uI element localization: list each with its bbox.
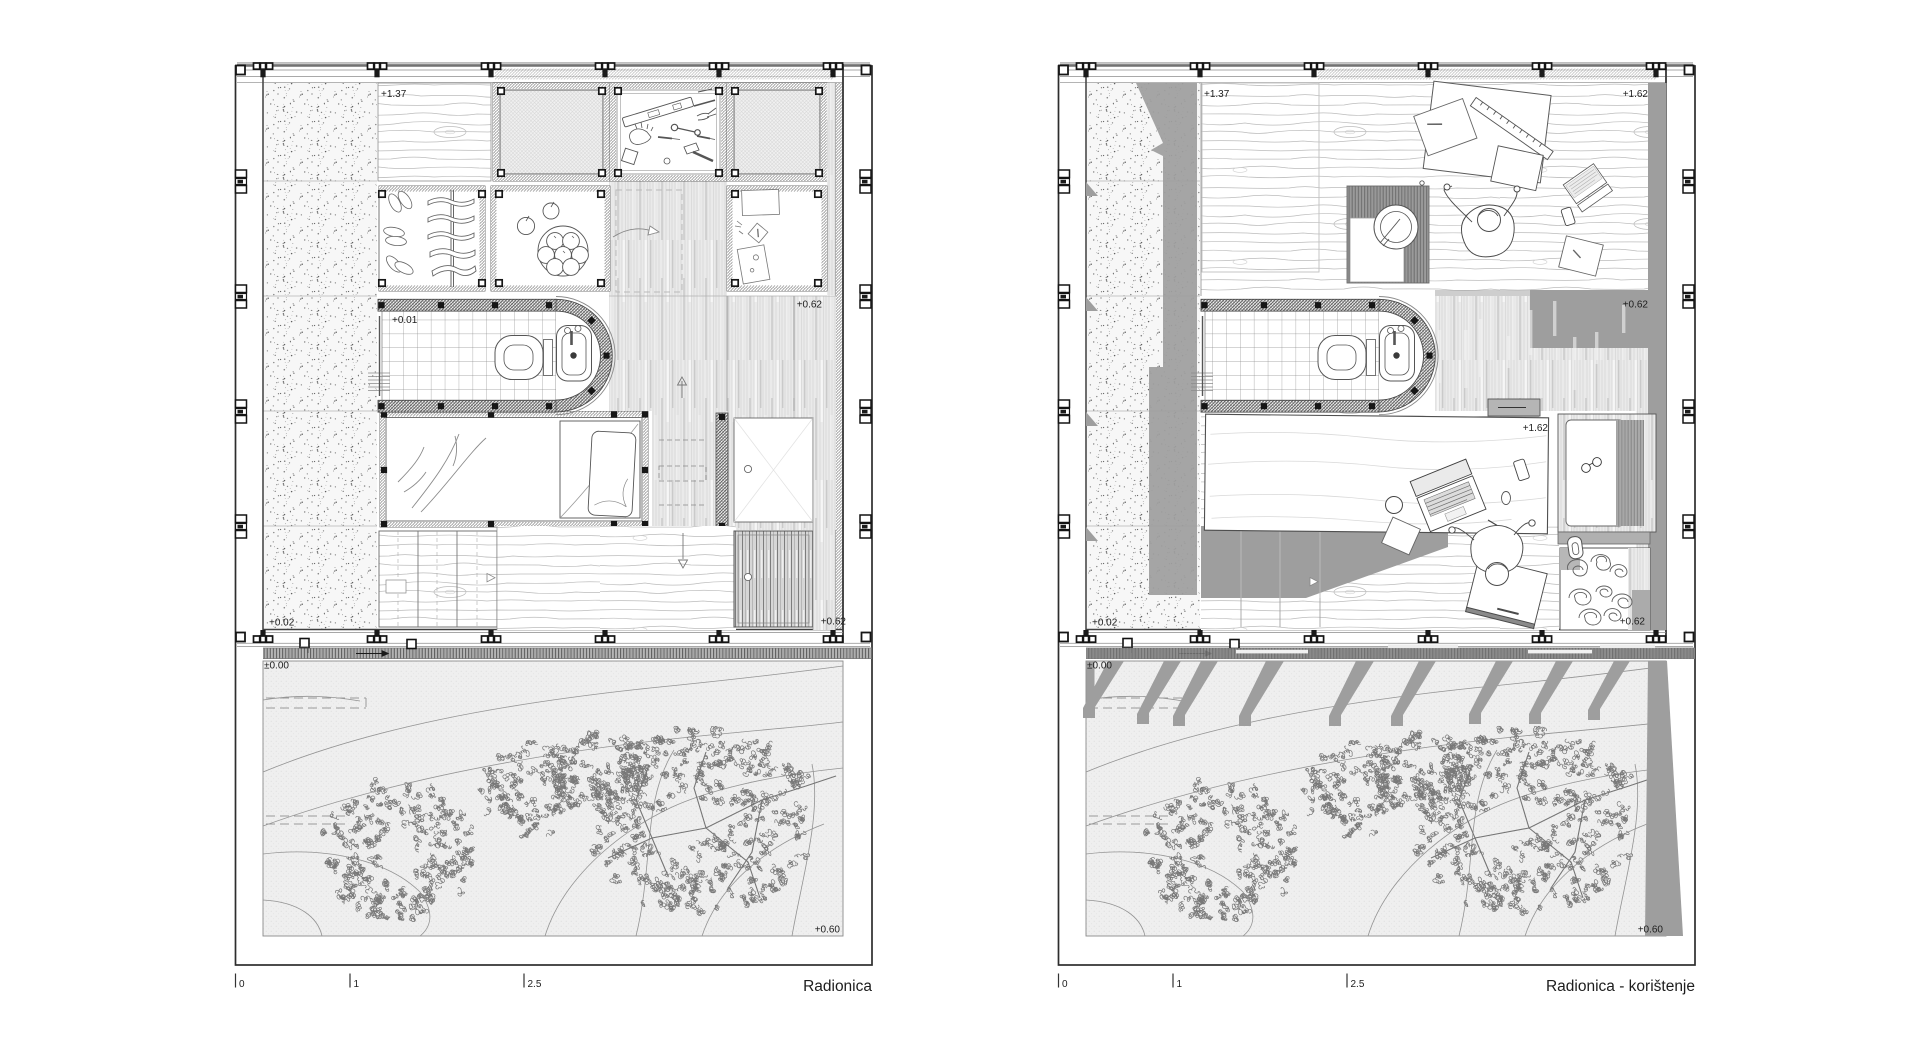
svg-text:1: 1 xyxy=(354,979,360,990)
svg-text:2.5: 2.5 xyxy=(1351,979,1365,990)
svg-text:+0.62: +0.62 xyxy=(1620,617,1646,628)
svg-text:2.5: 2.5 xyxy=(528,979,542,990)
svg-text:+1.37: +1.37 xyxy=(1204,89,1230,100)
svg-text:+0.62: +0.62 xyxy=(821,617,847,628)
svg-text:Radionica - korištenje: Radionica - korištenje xyxy=(1546,978,1695,995)
svg-text:0: 0 xyxy=(239,979,245,990)
svg-text:+0.62: +0.62 xyxy=(797,300,823,311)
svg-text:0: 0 xyxy=(1062,979,1068,990)
svg-text:+1.62: +1.62 xyxy=(1623,89,1649,100)
svg-text:+0.01: +0.01 xyxy=(392,315,418,326)
svg-text:+0.02: +0.02 xyxy=(269,618,295,629)
svg-text:+1.62: +1.62 xyxy=(1523,423,1549,434)
svg-text:1: 1 xyxy=(1177,979,1183,990)
svg-text:Radionica: Radionica xyxy=(803,978,872,995)
svg-text:+0.60: +0.60 xyxy=(1638,925,1664,936)
svg-text:+0.62: +0.62 xyxy=(1623,300,1649,311)
svg-text:+0.60: +0.60 xyxy=(815,925,841,936)
svg-text:+0.02: +0.02 xyxy=(1092,618,1118,629)
svg-text:±0.00: ±0.00 xyxy=(264,661,289,672)
svg-text:+1.37: +1.37 xyxy=(381,89,407,100)
svg-text:±0.00: ±0.00 xyxy=(1087,661,1112,672)
